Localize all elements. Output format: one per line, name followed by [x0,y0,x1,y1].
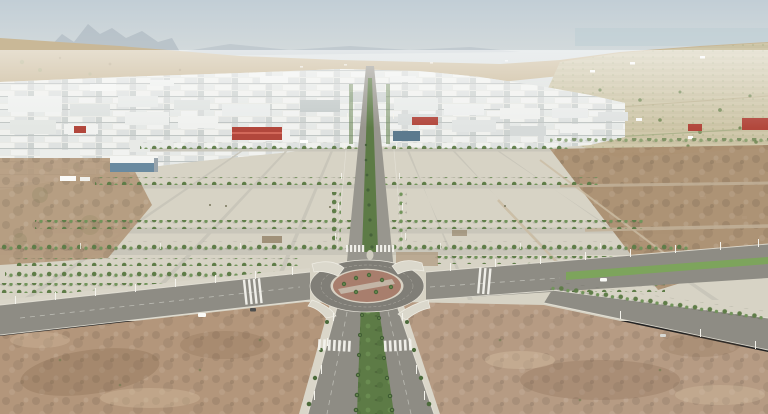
white-car-east [600,278,607,282]
dark-car [250,308,256,312]
scene [0,0,768,414]
glass-office-building [393,131,420,141]
red-roof-ridge [232,132,282,134]
north-splitter-island [367,250,374,260]
gray-car-southeast [660,334,666,337]
atmospheric-haze [0,50,768,128]
aerial-photo-industrial-park [0,0,768,414]
white-van [198,313,206,317]
roundabout [308,260,430,320]
crosswalk-east [477,268,492,295]
sea-horizon [575,28,768,46]
white-truck [300,140,308,143]
